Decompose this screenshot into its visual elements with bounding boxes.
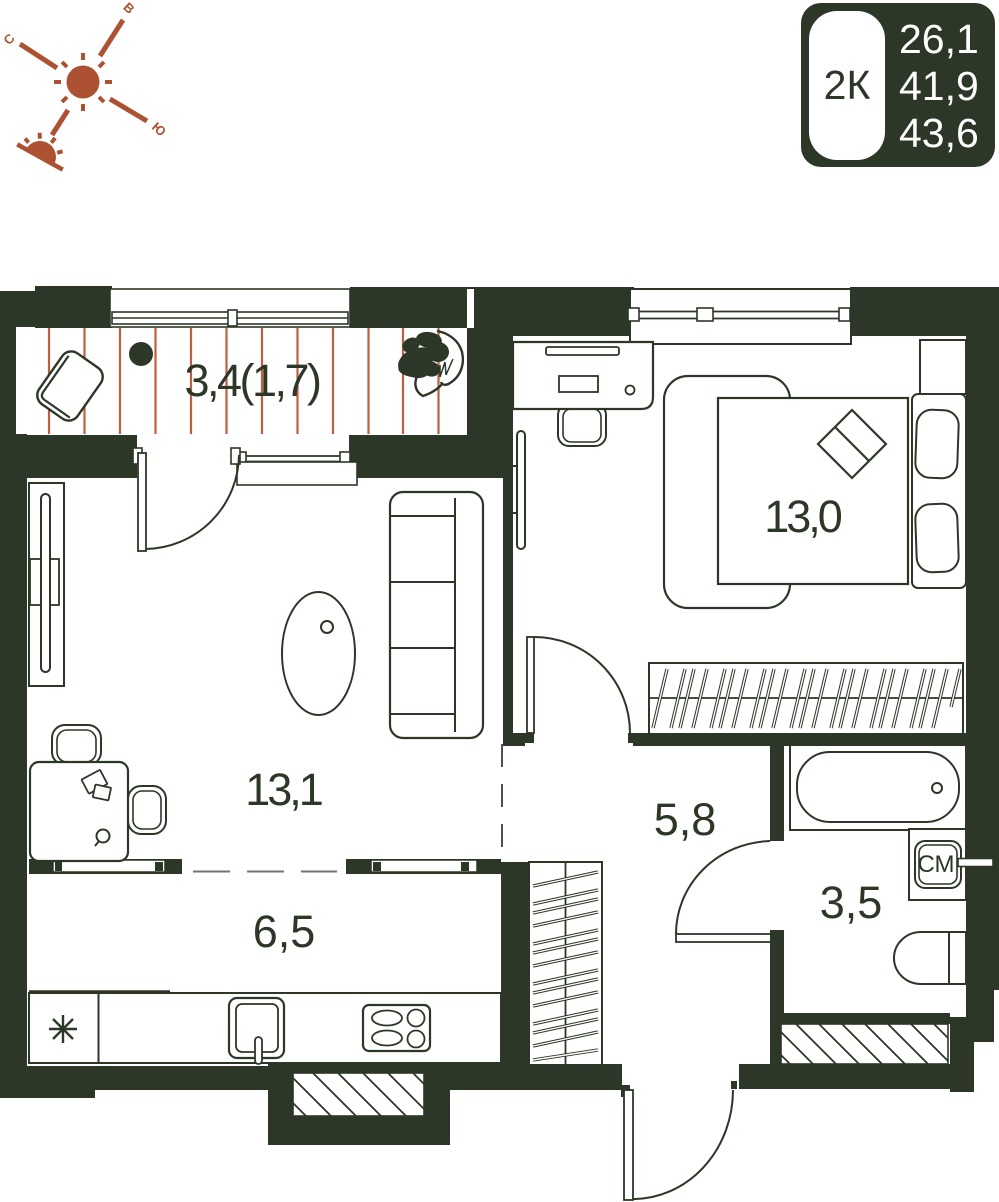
svg-text:5,8: 5,8	[654, 794, 717, 845]
svg-text:26,1: 26,1	[899, 16, 979, 62]
svg-text:13,0: 13,0	[764, 491, 842, 542]
svg-text:6,5: 6,5	[253, 906, 316, 957]
svg-text:3,4(1,7): 3,4(1,7)	[184, 355, 320, 406]
svg-text:3,5: 3,5	[820, 877, 883, 928]
svg-text:41,9: 41,9	[899, 63, 979, 109]
svg-text:2К: 2К	[824, 62, 871, 108]
svg-text:43,6: 43,6	[899, 110, 979, 156]
svg-text:13,1: 13,1	[245, 764, 322, 815]
svg-text:СМ: СМ	[917, 851, 954, 878]
